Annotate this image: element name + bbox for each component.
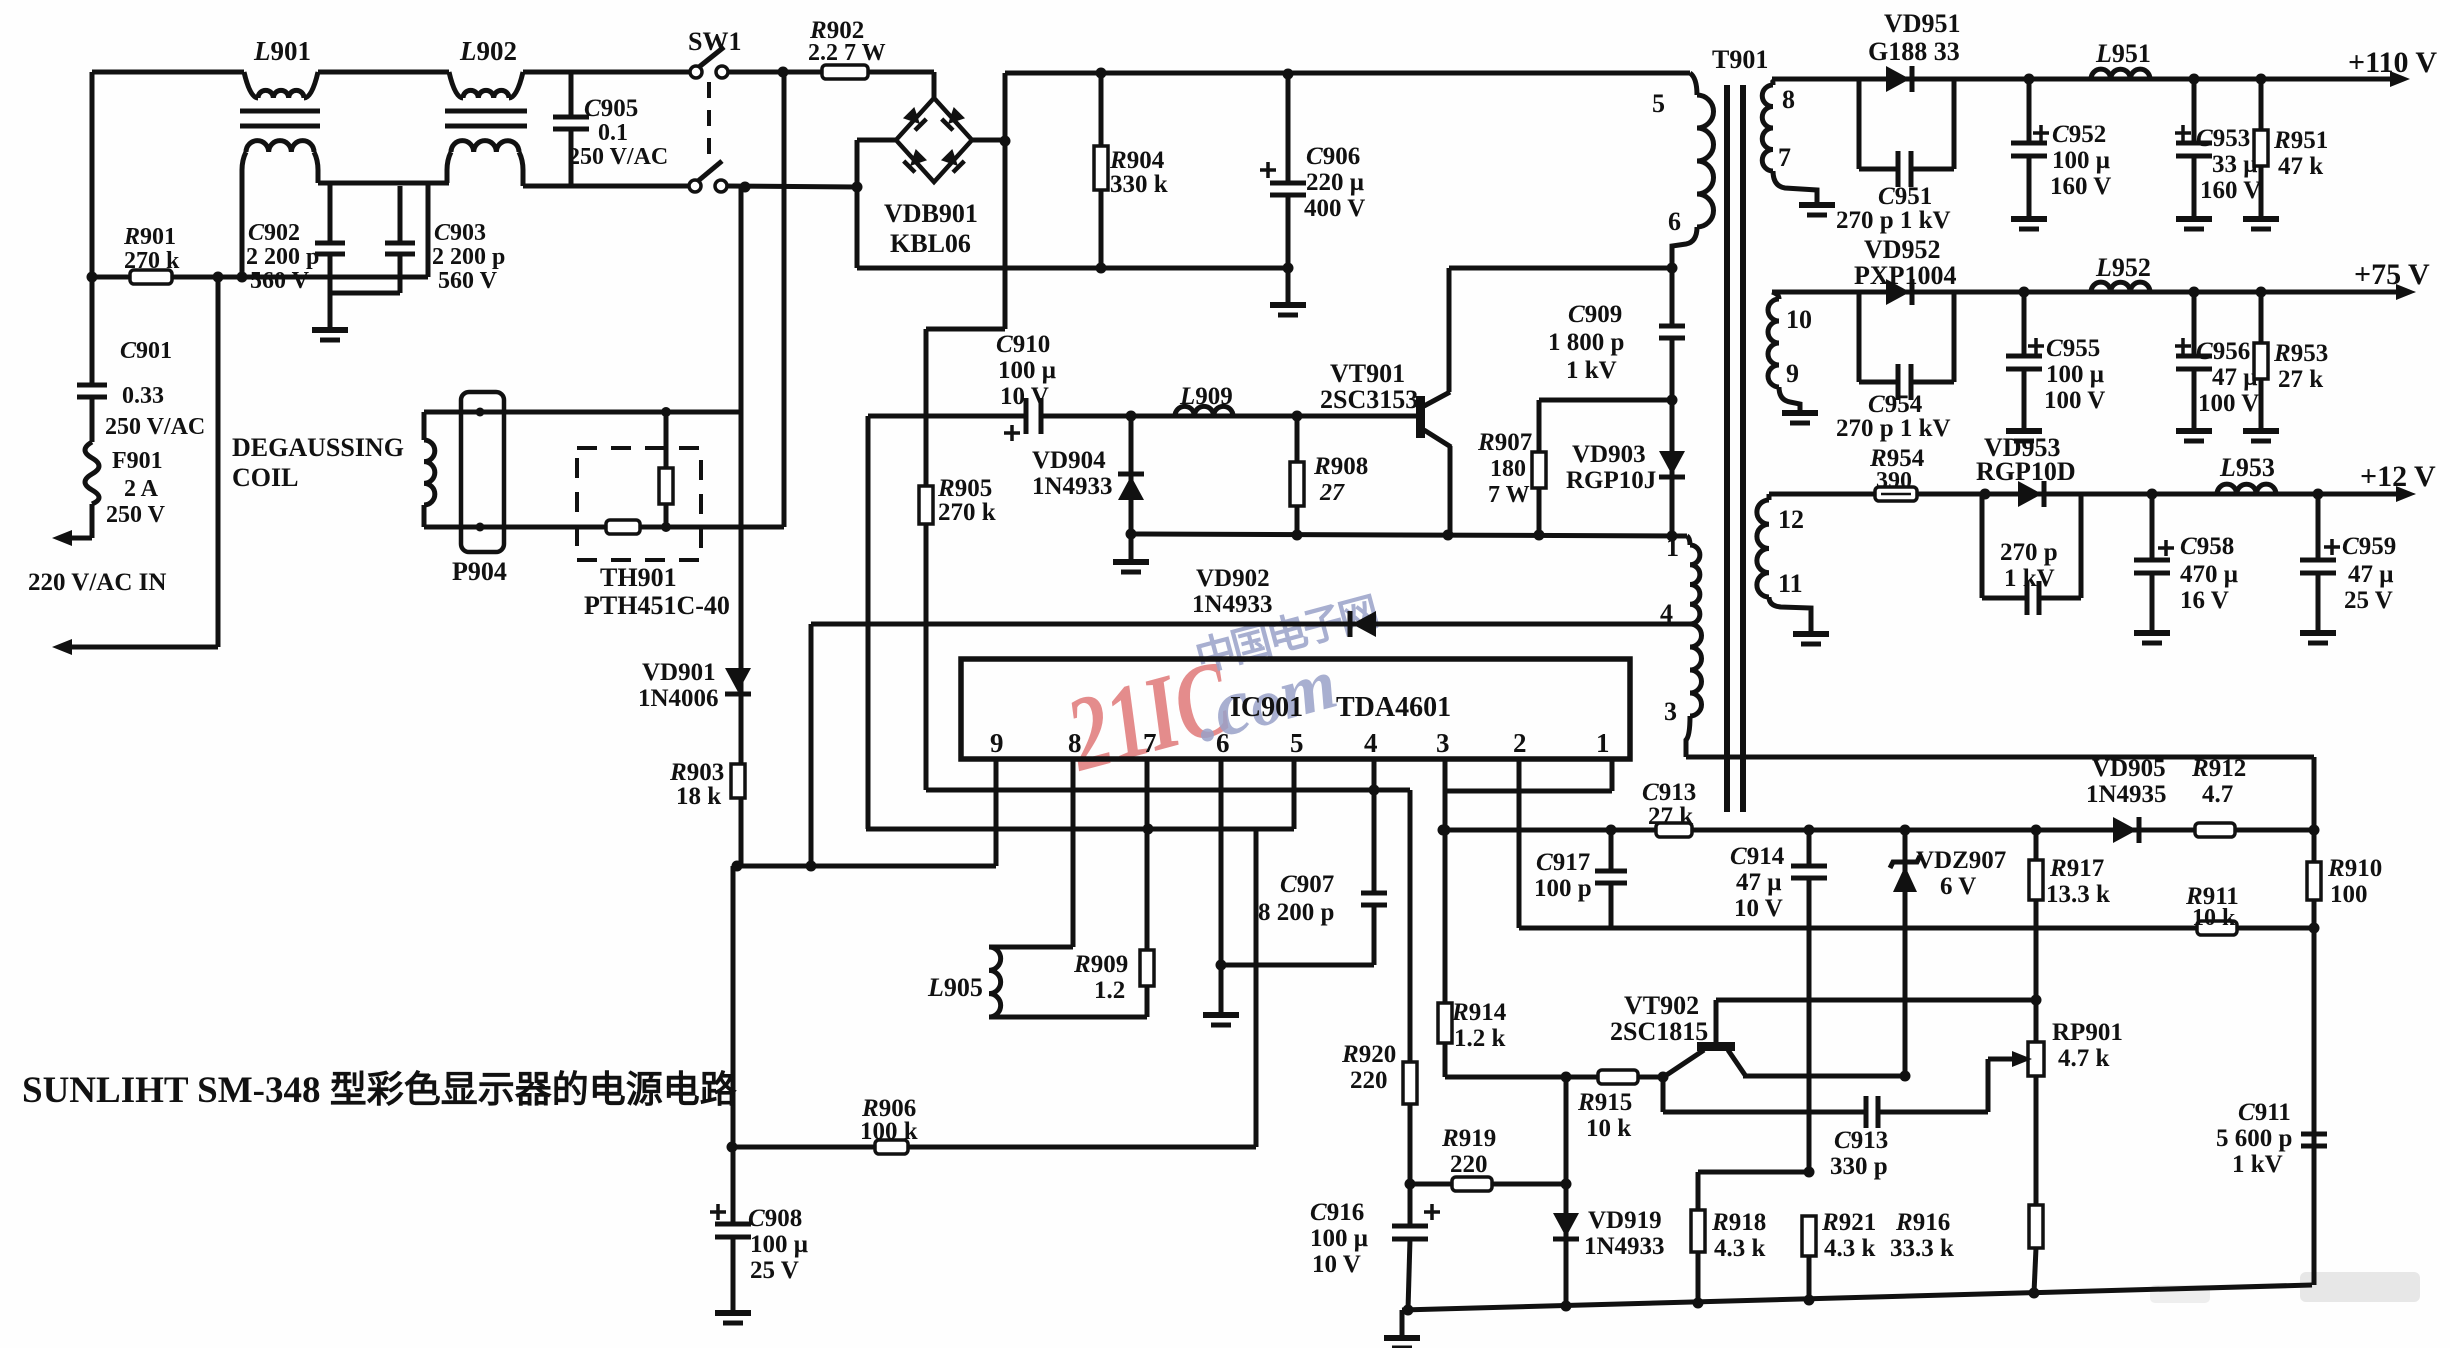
svg-text:9: 9 <box>990 728 1004 758</box>
svg-text:27: 27 <box>1319 480 1345 506</box>
svg-text:RGP10J: RGP10J <box>1566 467 1656 494</box>
svg-text:R951: R951 <box>2273 127 2328 154</box>
svg-text:33.3 k: 33.3 k <box>1890 1235 1954 1262</box>
svg-text:160 V: 160 V <box>2200 177 2261 204</box>
svg-text:C907: C907 <box>1280 871 1334 898</box>
svg-text:L902: L902 <box>459 36 517 66</box>
svg-text:25 V: 25 V <box>750 1257 799 1284</box>
svg-text:0.1: 0.1 <box>598 120 628 146</box>
svg-text:T901: T901 <box>1712 45 1768 74</box>
svg-text:R919: R919 <box>1441 1125 1496 1152</box>
svg-text:100 p: 100 p <box>1534 875 1592 902</box>
svg-text:1 kV: 1 kV <box>1566 357 1617 384</box>
svg-text:VT901: VT901 <box>1330 359 1405 388</box>
svg-text:560 V: 560 V <box>250 268 310 294</box>
svg-text:27 k: 27 k <box>2278 366 2323 393</box>
svg-text:390: 390 <box>1876 468 1912 494</box>
svg-text:250 V: 250 V <box>106 502 166 528</box>
svg-text:1 kV: 1 kV <box>2232 1151 2283 1178</box>
svg-text:L905: L905 <box>927 973 983 1002</box>
svg-text:5: 5 <box>1290 728 1304 758</box>
svg-text:470 μ: 470 μ <box>2180 561 2238 588</box>
svg-text:+75 V: +75 V <box>2354 258 2430 291</box>
svg-text:2 200 p: 2 200 p <box>246 244 319 270</box>
svg-text:VD903: VD903 <box>1572 441 1646 468</box>
svg-text:C916: C916 <box>1310 1199 1364 1226</box>
svg-text:6: 6 <box>1668 207 1681 236</box>
svg-text:F901: F901 <box>112 448 163 474</box>
svg-text:C905: C905 <box>584 95 638 122</box>
svg-text:COIL: COIL <box>232 463 298 492</box>
svg-text:R903: R903 <box>669 759 724 786</box>
svg-text:1N4933: 1N4933 <box>1032 473 1113 500</box>
svg-text:1: 1 <box>1596 728 1610 758</box>
svg-text:IC901: IC901 <box>1230 692 1303 723</box>
svg-text:47 k: 47 k <box>2278 153 2323 180</box>
svg-text:10 V: 10 V <box>1734 895 1783 922</box>
svg-text:C908: C908 <box>748 1205 802 1232</box>
svg-text:3: 3 <box>1664 697 1677 726</box>
svg-text:100 μ: 100 μ <box>2052 147 2110 174</box>
svg-text:R915: R915 <box>1577 1089 1632 1116</box>
svg-text:2SC3153: 2SC3153 <box>1320 385 1418 414</box>
svg-text:R920: R920 <box>1341 1041 1396 1068</box>
svg-text:2.2 7 W: 2.2 7 W <box>808 40 886 66</box>
svg-text:C913: C913 <box>1834 1127 1888 1154</box>
svg-text:10 k: 10 k <box>2192 905 2236 931</box>
svg-text:C956: C956 <box>2196 338 2250 365</box>
svg-text:VD919: VD919 <box>1588 1207 1662 1234</box>
svg-text:33 μ: 33 μ <box>2212 151 2257 178</box>
svg-text:160 V: 160 V <box>2050 173 2111 200</box>
svg-text:100: 100 <box>2330 881 2368 908</box>
svg-text:C952: C952 <box>2052 121 2106 148</box>
svg-text:+110 V: +110 V <box>2348 46 2437 79</box>
svg-text:C955: C955 <box>2046 335 2100 362</box>
svg-text:C917: C917 <box>1536 849 1590 876</box>
svg-text:7: 7 <box>1778 143 1791 172</box>
svg-text:2 200 p: 2 200 p <box>432 244 505 270</box>
svg-text:330 p: 330 p <box>1830 1153 1888 1180</box>
svg-text:270 p: 270 p <box>2000 539 2058 566</box>
svg-text:2 A: 2 A <box>124 476 159 502</box>
svg-text:47 μ: 47 μ <box>1736 869 1781 896</box>
svg-text:100 V: 100 V <box>2044 387 2105 414</box>
svg-text:R905: R905 <box>937 475 992 502</box>
svg-text:180: 180 <box>1490 456 1526 482</box>
svg-text:4.3 k: 4.3 k <box>1824 1235 1876 1262</box>
svg-text:220: 220 <box>1450 1151 1488 1178</box>
svg-text:C951: C951 <box>1878 183 1932 210</box>
svg-text:VT902: VT902 <box>1624 991 1699 1020</box>
svg-text:RP901: RP901 <box>2052 1019 2123 1046</box>
svg-text:P904: P904 <box>452 557 507 586</box>
svg-text:C953: C953 <box>2196 125 2250 152</box>
svg-text:KBL06: KBL06 <box>890 229 971 258</box>
svg-text:2SC1815: 2SC1815 <box>1610 1017 1708 1046</box>
svg-text:RGP10D: RGP10D <box>1976 457 2076 486</box>
svg-text:R901: R901 <box>123 224 176 250</box>
svg-text:R917: R917 <box>2049 855 2104 882</box>
svg-text:R914: R914 <box>1451 999 1507 1026</box>
svg-text:1N4933: 1N4933 <box>1584 1233 1665 1260</box>
svg-text:R904: R904 <box>1109 147 1165 174</box>
svg-text:R907: R907 <box>1477 429 1532 456</box>
svg-text:5: 5 <box>1652 89 1665 118</box>
svg-text:220 μ: 220 μ <box>1306 169 1364 196</box>
svg-text:27 k: 27 k <box>1648 803 1693 830</box>
svg-text:VD901: VD901 <box>642 659 716 686</box>
svg-text:100 k: 100 k <box>860 1118 918 1145</box>
svg-text:9: 9 <box>1786 359 1799 388</box>
svg-text:18 k: 18 k <box>676 783 721 810</box>
svg-text:SUNLIHT SM-348 型彩色显示器的电源电路: SUNLIHT SM-348 型彩色显示器的电源电路 <box>22 1069 738 1111</box>
svg-text:270 k: 270 k <box>124 248 180 274</box>
svg-text:13.3 k: 13.3 k <box>2046 881 2110 908</box>
svg-text:7 W: 7 W <box>1488 482 1530 508</box>
svg-text:PTH451C-40: PTH451C-40 <box>584 591 730 620</box>
svg-text:C903: C903 <box>434 220 486 246</box>
svg-text:L909: L909 <box>1179 383 1233 410</box>
svg-text:270 p 1 kV: 270 p 1 kV <box>1836 207 1951 234</box>
svg-text:5 600 p: 5 600 p <box>2216 1125 2292 1152</box>
svg-text:7: 7 <box>1143 728 1157 758</box>
svg-text:L951: L951 <box>2095 39 2151 68</box>
svg-text:100 μ: 100 μ <box>1310 1225 1368 1252</box>
svg-text:R909: R909 <box>1073 951 1128 978</box>
svg-text:4.7: 4.7 <box>2202 781 2233 808</box>
svg-text:25 V: 25 V <box>2344 587 2393 614</box>
svg-text:VD952: VD952 <box>1864 235 1941 264</box>
svg-text:12: 12 <box>1778 505 1804 534</box>
svg-text:8: 8 <box>1068 728 1082 758</box>
svg-text:6 V: 6 V <box>1940 873 1976 900</box>
svg-text:C914: C914 <box>1730 843 1785 870</box>
svg-text:R918: R918 <box>1711 1209 1766 1236</box>
svg-text:8 200 p: 8 200 p <box>1258 899 1334 926</box>
svg-text:100 μ: 100 μ <box>998 357 1056 384</box>
svg-text:C954: C954 <box>1868 391 1923 418</box>
svg-text:1N4933: 1N4933 <box>1192 591 1273 618</box>
svg-text:TDA4601: TDA4601 <box>1336 692 1451 723</box>
svg-text:C959: C959 <box>2342 533 2396 560</box>
svg-text:100 μ: 100 μ <box>750 1231 808 1258</box>
svg-text:VD904: VD904 <box>1032 447 1106 474</box>
svg-text:R908: R908 <box>1313 453 1368 480</box>
svg-text:L901: L901 <box>253 36 311 66</box>
svg-text:4.7 k: 4.7 k <box>2058 1045 2110 1072</box>
svg-text:47 μ: 47 μ <box>2212 364 2257 391</box>
svg-text:220 V/AC IN: 220 V/AC IN <box>28 569 166 596</box>
svg-text:4: 4 <box>1364 728 1378 758</box>
svg-text:1N4006: 1N4006 <box>638 685 719 712</box>
svg-text:VDB901: VDB901 <box>884 199 978 228</box>
svg-text:6: 6 <box>1216 728 1230 758</box>
svg-text:VD902: VD902 <box>1196 565 1270 592</box>
svg-text:250 V/AC: 250 V/AC <box>105 414 205 440</box>
svg-text:10 k: 10 k <box>1586 1115 1631 1142</box>
svg-text:0.33: 0.33 <box>122 383 164 409</box>
svg-text:R910: R910 <box>2327 855 2382 882</box>
svg-text:C910: C910 <box>996 331 1050 358</box>
svg-text:47 μ: 47 μ <box>2348 561 2393 588</box>
svg-text:3: 3 <box>1436 728 1450 758</box>
svg-text:100 μ: 100 μ <box>2046 361 2104 388</box>
svg-text:10 V: 10 V <box>1312 1251 1361 1278</box>
svg-text:PXP1004: PXP1004 <box>1854 261 1957 290</box>
svg-text:R953: R953 <box>2273 340 2328 367</box>
svg-text:L953: L953 <box>2219 453 2275 482</box>
svg-text:C901: C901 <box>120 338 172 364</box>
svg-text:560 V: 560 V <box>438 268 498 294</box>
svg-text:VD951: VD951 <box>1884 9 1961 38</box>
svg-text:1.2 k: 1.2 k <box>1454 1025 1506 1052</box>
svg-text:DEGAUSSING: DEGAUSSING <box>232 433 404 462</box>
svg-text:R921: R921 <box>1821 1209 1876 1236</box>
svg-text:330 k: 330 k <box>1110 171 1168 198</box>
svg-text:270 k: 270 k <box>938 499 996 526</box>
svg-text:270 p 1 kV: 270 p 1 kV <box>1836 415 1951 442</box>
svg-text:250 V/AC: 250 V/AC <box>568 144 668 170</box>
svg-text:10 V: 10 V <box>1000 383 1049 410</box>
svg-text:10: 10 <box>1786 305 1812 334</box>
svg-text:100 V: 100 V <box>2198 390 2259 417</box>
svg-text:+12 V: +12 V <box>2360 460 2436 493</box>
svg-text:TH901: TH901 <box>600 563 677 592</box>
svg-text:1N4935: 1N4935 <box>2086 781 2167 808</box>
svg-text:VD905: VD905 <box>2092 755 2166 782</box>
svg-text:8: 8 <box>1782 85 1795 114</box>
svg-text:C911: C911 <box>2238 1099 2291 1126</box>
svg-text:C909: C909 <box>1568 301 1622 328</box>
svg-text:C958: C958 <box>2180 533 2234 560</box>
svg-text:4.3 k: 4.3 k <box>1714 1235 1766 1262</box>
svg-text:400 V: 400 V <box>1304 195 1365 222</box>
svg-text:C902: C902 <box>248 220 300 246</box>
svg-text:1 kV: 1 kV <box>2004 565 2055 592</box>
svg-text:L952: L952 <box>2095 253 2151 282</box>
svg-text:C913: C913 <box>1642 779 1696 806</box>
svg-text:1 800 p: 1 800 p <box>1548 329 1624 356</box>
svg-text:C906: C906 <box>1306 143 1360 170</box>
svg-text:16 V: 16 V <box>2180 587 2229 614</box>
svg-text:G188 33: G188 33 <box>1868 37 1960 66</box>
svg-text:1: 1 <box>1666 533 1679 562</box>
svg-text:1.2: 1.2 <box>1094 977 1125 1004</box>
svg-text:VDZ907: VDZ907 <box>1916 847 2006 874</box>
svg-text:2: 2 <box>1513 728 1527 758</box>
svg-text:11: 11 <box>1778 569 1803 598</box>
svg-text:220: 220 <box>1350 1067 1388 1094</box>
svg-text:R912: R912 <box>2191 755 2246 782</box>
svg-text:R916: R916 <box>1895 1209 1950 1236</box>
